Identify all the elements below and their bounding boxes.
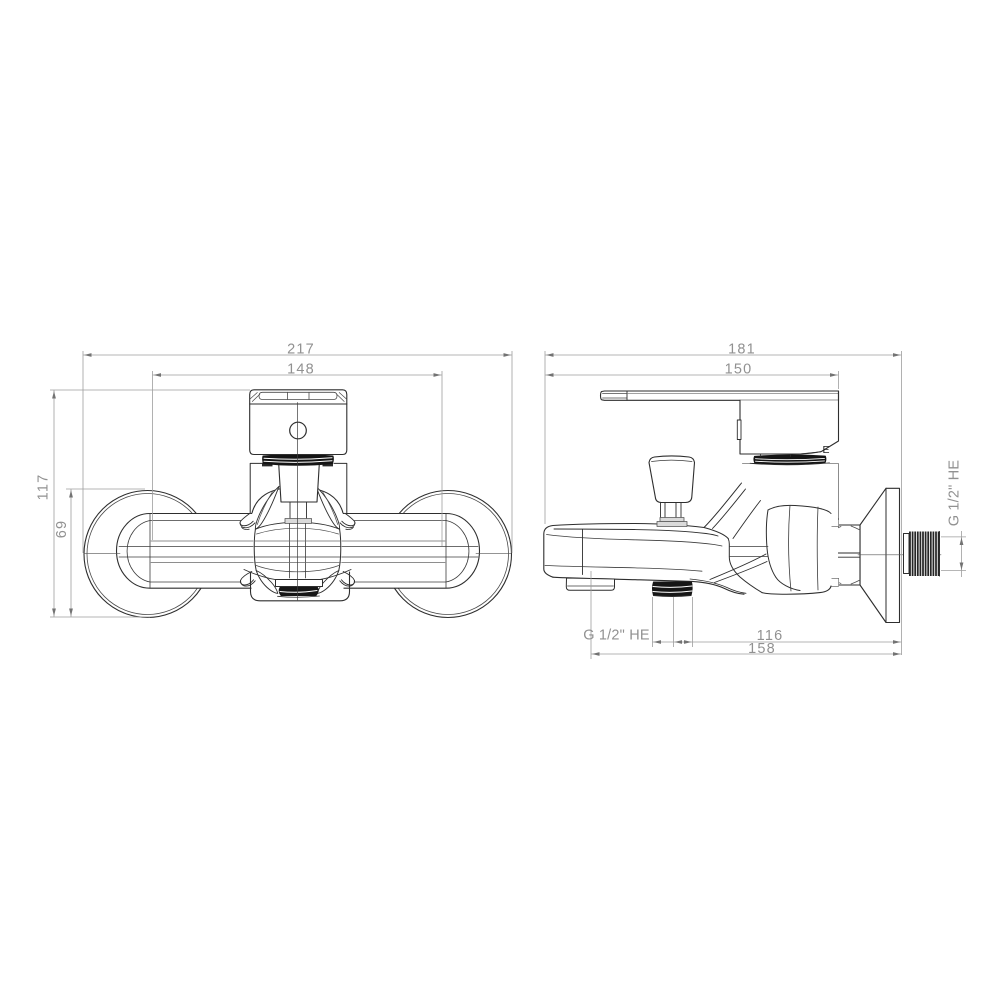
svg-text:G 1/2" HE: G 1/2" HE (583, 628, 650, 644)
svg-text:117: 117 (36, 474, 52, 501)
svg-text:E: E (823, 444, 830, 456)
svg-text:158: 158 (748, 641, 776, 657)
svg-text:217: 217 (287, 342, 315, 358)
svg-text:181: 181 (728, 342, 756, 358)
svg-text:150: 150 (725, 362, 753, 378)
svg-text:G 1/2" HE: G 1/2" HE (947, 460, 963, 527)
svg-text:148: 148 (287, 362, 315, 378)
svg-text:69: 69 (54, 520, 70, 539)
